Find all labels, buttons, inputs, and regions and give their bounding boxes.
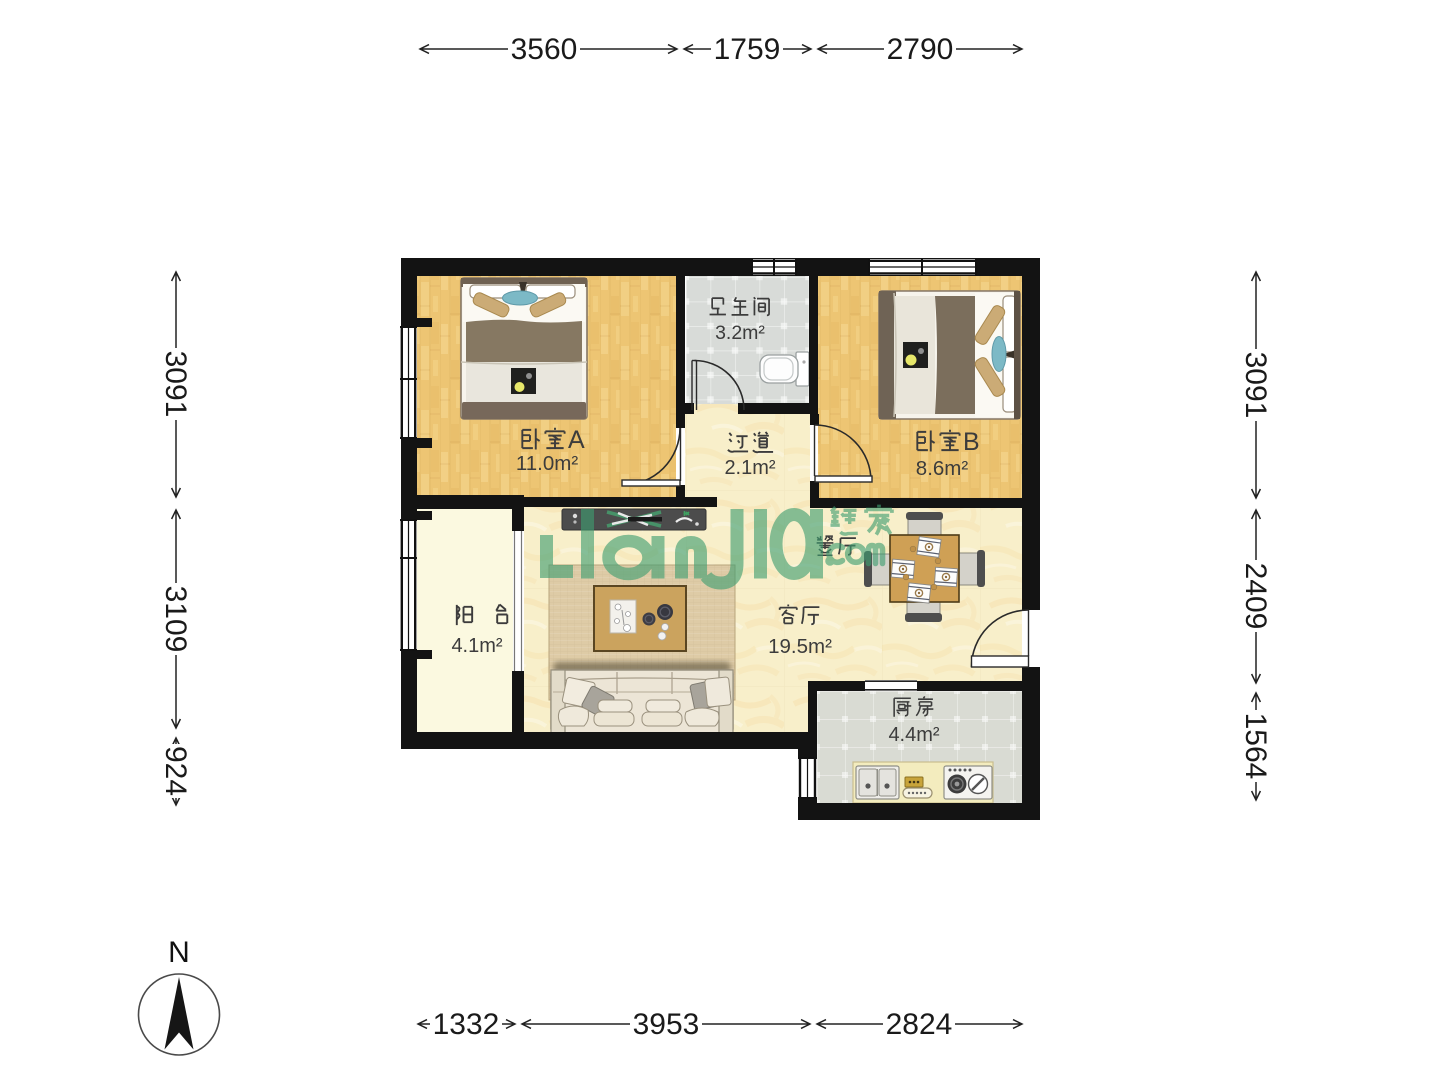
- svg-text:1564: 1564: [1239, 713, 1272, 780]
- svg-text:19.5m²: 19.5m²: [768, 635, 832, 658]
- svg-text:2824: 2824: [886, 1008, 953, 1041]
- svg-text:3953: 3953: [633, 1008, 700, 1041]
- svg-text:2.1m²: 2.1m²: [724, 457, 775, 479]
- svg-text:2790: 2790: [887, 33, 954, 66]
- svg-text:4.4m²: 4.4m²: [888, 724, 939, 746]
- svg-text:924: 924: [159, 746, 192, 796]
- svg-text:3.2m²: 3.2m²: [715, 322, 765, 344]
- svg-text:3560: 3560: [511, 33, 578, 66]
- svg-text:2409: 2409: [1239, 563, 1272, 630]
- svg-text:3091: 3091: [1239, 352, 1272, 419]
- svg-text:A: A: [568, 426, 585, 454]
- svg-text:8.6m²: 8.6m²: [916, 457, 969, 480]
- svg-text:1759: 1759: [714, 33, 781, 66]
- svg-text:3091: 3091: [159, 351, 192, 418]
- svg-text:11.0m²: 11.0m²: [516, 452, 578, 475]
- svg-text:4.1m²: 4.1m²: [451, 635, 502, 657]
- svg-text:N: N: [168, 936, 190, 969]
- svg-text:3109: 3109: [159, 586, 192, 653]
- svg-text:1332: 1332: [433, 1008, 500, 1041]
- svg-text:B: B: [963, 428, 980, 456]
